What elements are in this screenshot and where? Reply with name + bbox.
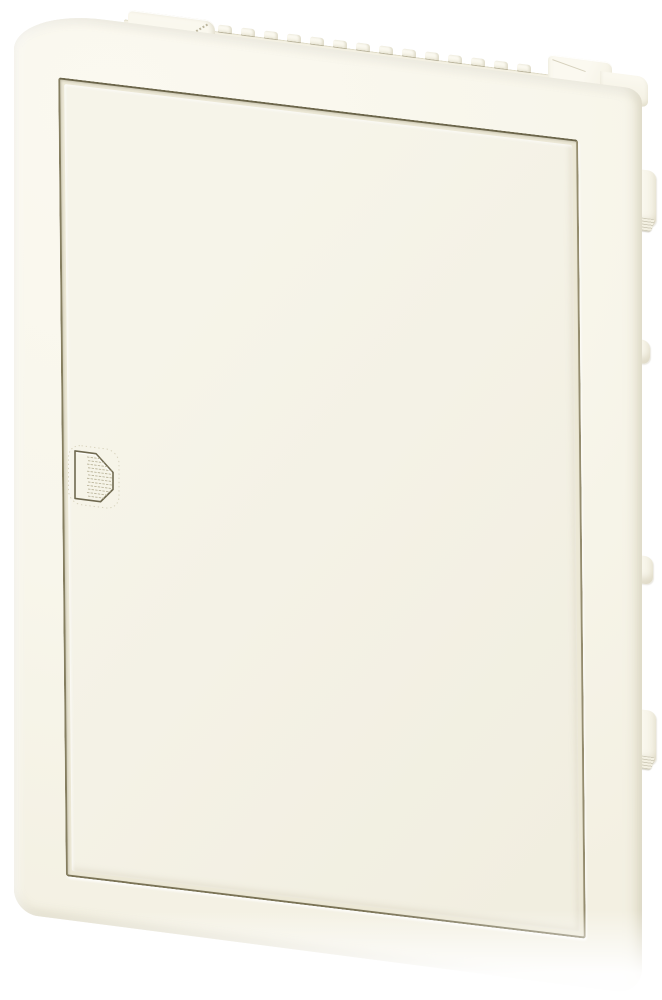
door-seam — [58, 77, 586, 938]
tab-crease-detail — [552, 59, 585, 72]
door-panel — [64, 84, 580, 932]
distribution-board — [14, 8, 642, 995]
door-handle — [66, 441, 128, 515]
product-photo — [0, 0, 662, 1000]
